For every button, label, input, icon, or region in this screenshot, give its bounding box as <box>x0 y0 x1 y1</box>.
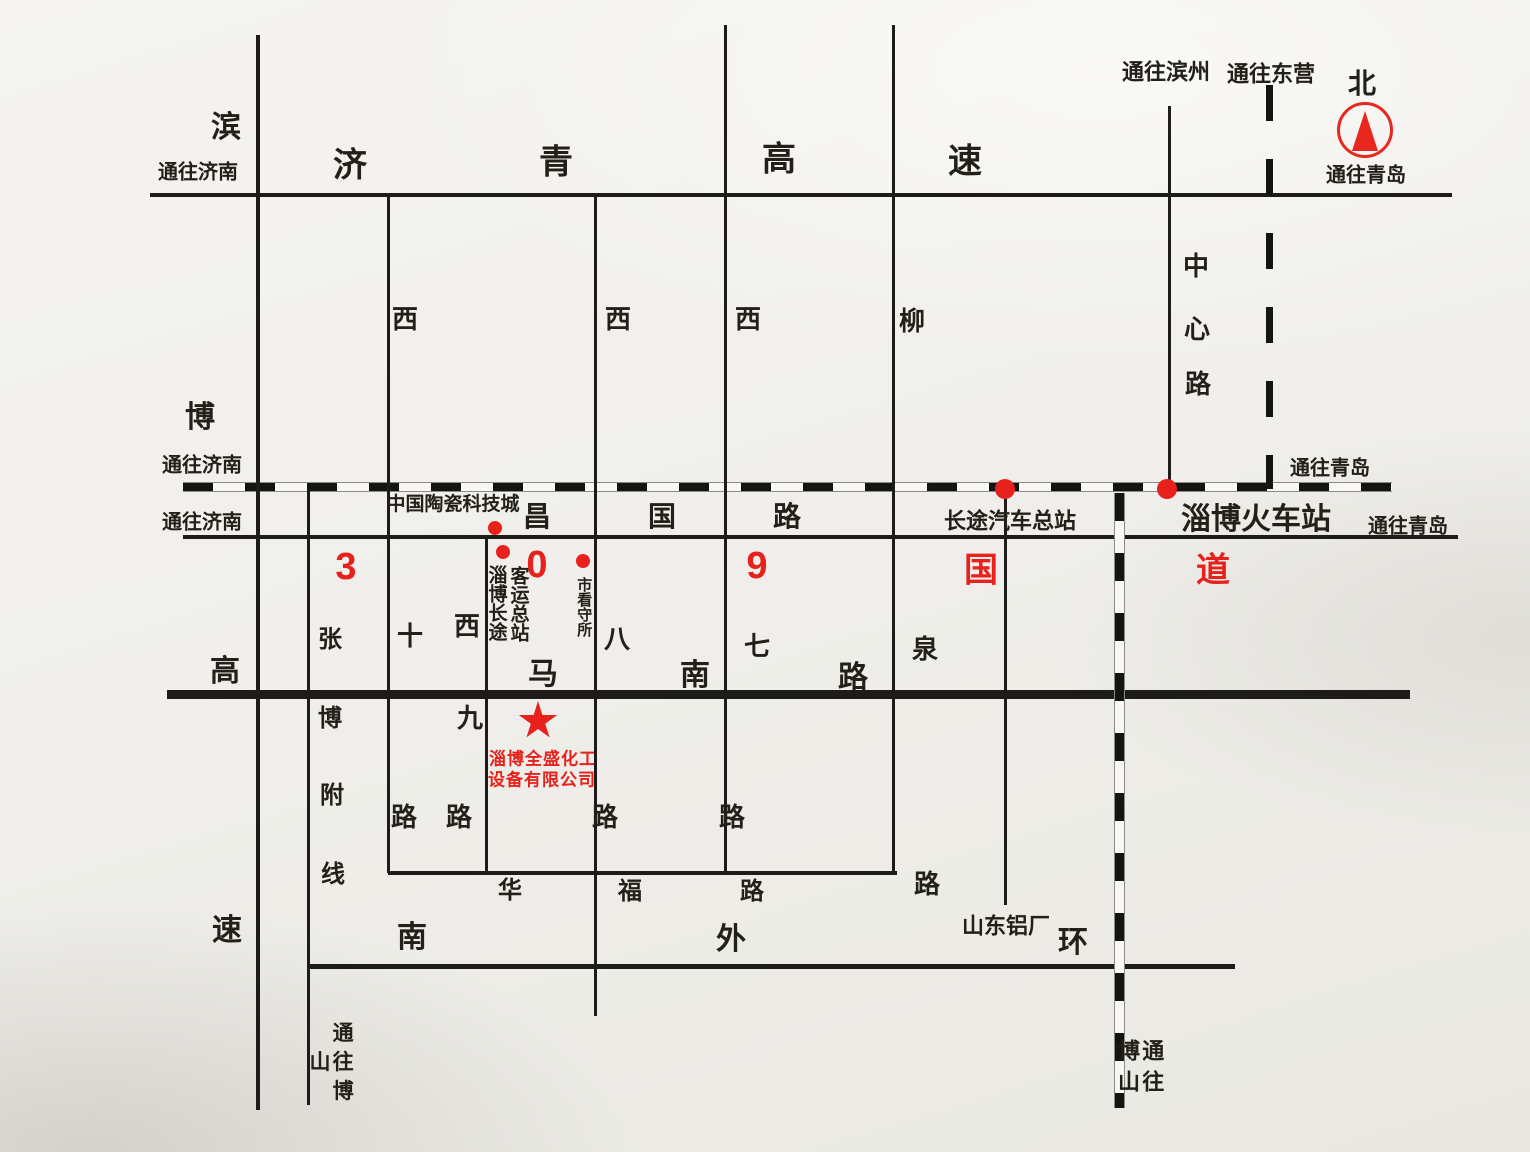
zhangbo-char-3: 附 <box>320 782 344 810</box>
north-label: 北 <box>1348 68 1376 100</box>
west8-char-lu: 路 <box>592 803 618 833</box>
detention-house-label: 市看守所 <box>575 577 592 637</box>
jiqing-expwy-char-4: 速 <box>948 142 982 181</box>
location-map: 淄博全盛化工 设备有限公司 通往济南滨博高速济青高速通往滨州通往东营北通往青岛西… <box>0 0 1530 1152</box>
to-binzhou: 通往滨州 <box>1122 59 1210 84</box>
dot-bus-terminal <box>995 479 1015 499</box>
dot-ceramics-city <box>488 521 502 535</box>
compass-needle-icon <box>1352 111 1378 151</box>
coach-terminal-label-col1: 淄博长途 <box>485 565 506 641</box>
huafu-char-1: 华 <box>498 877 522 905</box>
zhongxin-road <box>1168 106 1171 489</box>
manan-char-nan: 南 <box>680 659 710 694</box>
changguo-char-2: 国 <box>648 501 676 533</box>
changguo-char-3: 路 <box>773 501 801 533</box>
coach-terminal-label-col2: 客运总站 <box>507 566 528 642</box>
zhongxin-char-2: 心 <box>1184 315 1210 345</box>
dot-railway-station <box>1157 479 1177 499</box>
west7-char-xi: 西 <box>735 305 761 335</box>
ring-char-wai: 外 <box>716 923 746 958</box>
g309-char-9: 9 <box>746 545 767 589</box>
to-dongying: 通往东营 <box>1227 61 1315 86</box>
ring-char-nan: 南 <box>397 921 427 956</box>
manan-char-ma: 马 <box>528 658 558 693</box>
shandong-aluminum-label: 山东铝厂 <box>962 913 1050 938</box>
to-jinan-railway: 通往济南 <box>162 455 242 478</box>
g309-char-dao: 道 <box>1196 551 1230 590</box>
south-outer-ring <box>308 964 1235 969</box>
manan-char-lu: 路 <box>838 661 868 696</box>
west-7th-road <box>724 25 727 873</box>
zhangbo-char-2: 博 <box>318 705 342 733</box>
huafu-road <box>388 871 897 875</box>
west9-char-lu: 路 <box>446 803 472 833</box>
g309-char-3: 3 <box>335 546 356 590</box>
liuquan-char-quan: 泉 <box>912 635 938 665</box>
west7-char-qi: 七 <box>744 632 770 662</box>
west9-char-jiu: 九 <box>457 704 483 734</box>
west8-char-ba: 八 <box>604 625 630 655</box>
bus-terminal-spur <box>1004 489 1007 905</box>
dot-detention-house <box>576 554 590 568</box>
to-jinan-north: 通往济南 <box>158 162 238 185</box>
zhongxin-char-3: 路 <box>1185 370 1211 400</box>
railway-south <box>1114 493 1125 1108</box>
binbo-expwy-char-3: 高 <box>210 655 240 690</box>
zhangbo-branch-line <box>307 489 310 1105</box>
west7-char-lu: 路 <box>719 803 745 833</box>
bus-terminal-label: 长途汽车总站 <box>944 508 1076 533</box>
compass-north-icon <box>1337 102 1393 158</box>
g309-char-guo: 国 <box>964 551 998 590</box>
liuquan-road <box>892 25 895 875</box>
huafu-char-3: 路 <box>740 878 764 906</box>
company-name-line2: 设备有限公司 <box>488 766 596 791</box>
west8-char-xi: 西 <box>605 305 631 335</box>
jiqing-expwy-char-3: 高 <box>762 140 796 179</box>
changguo-char-1: 昌 <box>523 501 551 533</box>
railway-station-label: 淄博火车站 <box>1181 503 1331 538</box>
to-qingdao-top: 通往青岛 <box>1326 165 1406 188</box>
west-8th-road <box>594 195 597 1016</box>
west-10th-road <box>387 195 390 873</box>
west10-char-xi: 西 <box>392 305 418 335</box>
liuquan-char-lu: 路 <box>914 870 940 900</box>
binbo-expwy-char-2: 博 <box>185 401 215 436</box>
to-jinan-changguo: 通往济南 <box>162 512 242 535</box>
dot-coach-terminal <box>496 545 510 559</box>
binbo-expressway <box>256 35 260 1110</box>
to-boshan-west: 通往博山 <box>307 1022 353 1109</box>
to-qingdao-changguo: 通往青岛 <box>1368 516 1448 539</box>
manan-road <box>167 690 1410 699</box>
g309-char-0: 0 <box>526 544 547 588</box>
west10-char-shi: 十 <box>397 622 423 652</box>
zhangbo-char-4: 线 <box>321 861 345 889</box>
ceramics-city-label: 中国陶瓷科技城 <box>386 494 519 516</box>
binbo-expwy-char-4: 速 <box>212 914 242 949</box>
railway-g309 <box>183 482 1392 492</box>
dongying-road <box>1266 85 1273 489</box>
to-qingdao-railway: 通往青岛 <box>1290 458 1370 481</box>
zhongxin-char-1: 中 <box>1183 252 1209 282</box>
zhangbo-char-1: 张 <box>318 626 342 654</box>
to-boshan-railway: 通往博山 <box>1115 1029 1163 1111</box>
west9-char-xi: 西 <box>454 612 480 642</box>
company-star-marker <box>518 701 558 741</box>
huafu-char-2: 福 <box>618 878 642 906</box>
jiqing-expressway <box>150 193 1452 197</box>
west10-char-lu: 路 <box>391 803 417 833</box>
jiqing-expwy-char-1: 济 <box>333 146 367 185</box>
liuquan-char-liu: 柳 <box>899 307 925 337</box>
jiqing-expwy-char-2: 青 <box>539 143 573 182</box>
binbo-expwy-char-1: 滨 <box>211 111 241 146</box>
ring-char-huan: 环 <box>1058 926 1088 961</box>
